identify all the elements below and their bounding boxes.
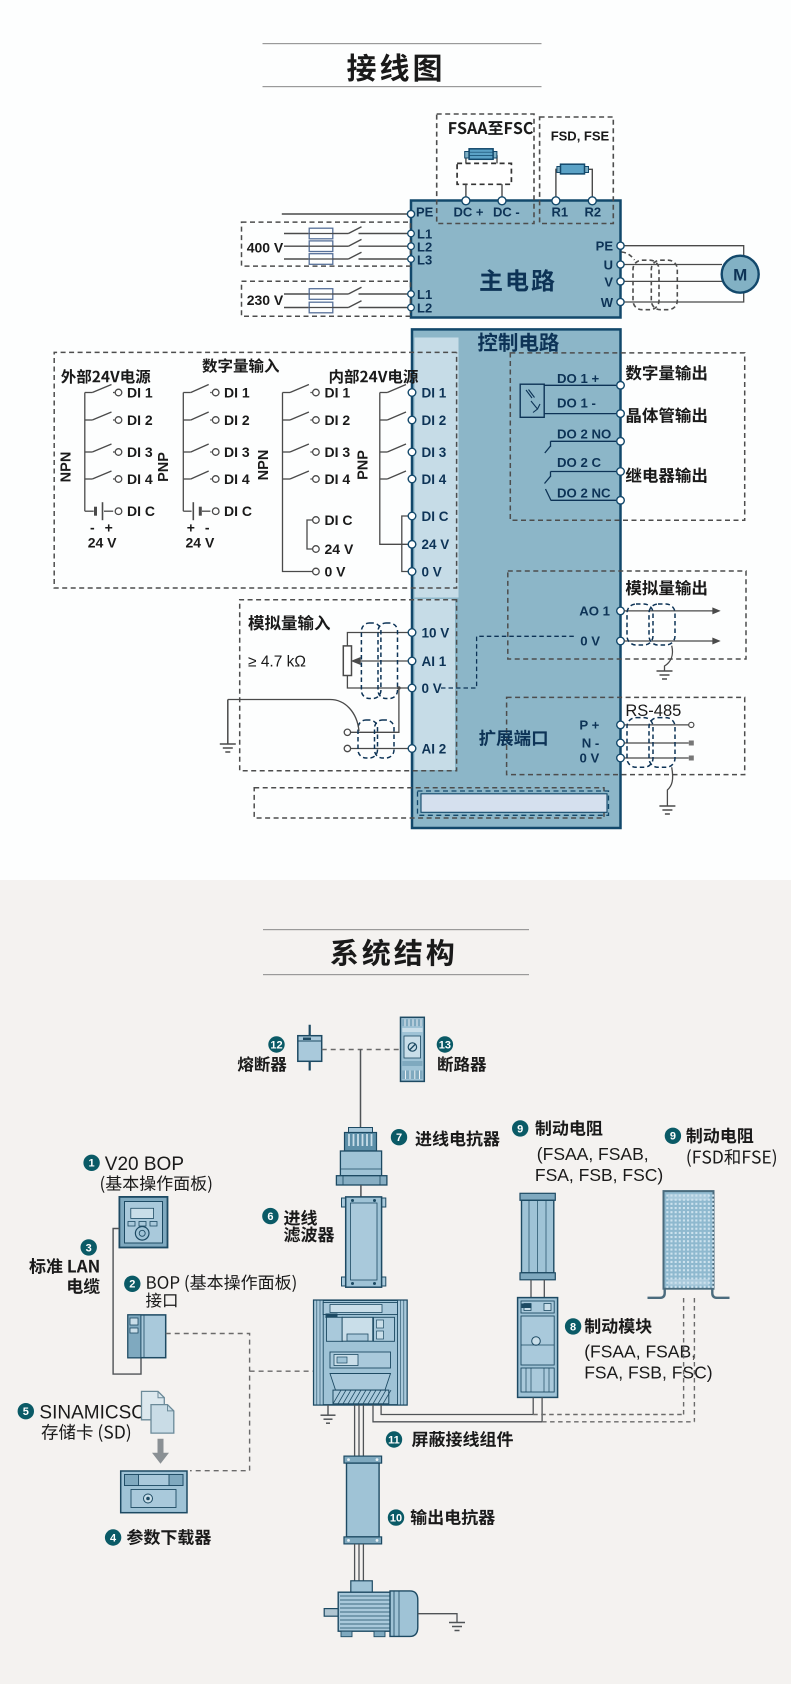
svg-text:0 V: 0 V [422,564,442,579]
svg-text:10 V: 10 V [422,625,450,640]
svg-text:FSD, FSE: FSD, FSE [551,129,610,144]
svg-text:DI 1: DI 1 [422,385,447,400]
svg-text:DC -: DC - [493,205,520,220]
svg-text:DI 4: DI 4 [127,471,153,487]
svg-text:DI C: DI C [224,503,252,519]
svg-text:DI 4: DI 4 [325,471,351,487]
svg-text:NPN: NPN [58,452,74,483]
svg-text:DI 2: DI 2 [325,412,351,428]
svg-text:10: 10 [390,1513,402,1525]
svg-text:13: 13 [439,1039,451,1051]
svg-text:DI 3: DI 3 [325,444,351,460]
svg-text:0 V: 0 V [580,634,600,649]
svg-text:DI 4: DI 4 [422,472,447,487]
svg-text:V20 BOP: V20 BOP [105,1154,184,1175]
svg-text:3: 3 [86,1242,92,1254]
svg-text:8: 8 [570,1321,576,1333]
svg-text:DI 1: DI 1 [325,385,351,401]
svg-text:-: - [205,520,210,536]
svg-text:6: 6 [267,1211,273,1223]
svg-text:DO 1 -: DO 1 - [557,396,596,411]
svg-text:AI 2: AI 2 [422,741,447,756]
svg-text:V: V [604,274,613,289]
svg-text:DI 3: DI 3 [422,445,447,460]
svg-text:M: M [733,266,747,285]
svg-text:≥ 4.7 kΩ: ≥ 4.7 kΩ [248,654,306,671]
svg-text:SINAMICSC: SINAMICSC [39,1403,145,1424]
svg-text:+: + [187,520,195,536]
svg-text:2: 2 [129,1279,135,1291]
svg-text:+: + [105,520,113,536]
svg-text:7: 7 [396,1132,402,1144]
svg-text:NPN: NPN [256,450,272,481]
svg-text:0 V: 0 V [580,750,600,765]
svg-text:L2: L2 [417,301,432,316]
svg-text:230 V: 230 V [247,292,284,308]
svg-text:FSA, FSB, FSC): FSA, FSB, FSC) [584,1363,712,1383]
svg-text:W: W [601,295,614,310]
svg-text:DC +: DC + [454,205,484,220]
svg-text:PE: PE [596,239,614,254]
svg-text:11: 11 [388,1434,400,1446]
svg-text:RS-485: RS-485 [625,702,681,720]
svg-text:DO 1 +: DO 1 + [557,371,599,386]
svg-text:R2: R2 [585,205,602,220]
svg-text:DI 2: DI 2 [224,412,250,428]
svg-text:DI 2: DI 2 [127,412,153,428]
svg-text:DI 3: DI 3 [127,444,153,460]
svg-text:0 V: 0 V [325,564,347,580]
svg-text:DI 3: DI 3 [224,444,250,460]
svg-text:24 V: 24 V [422,537,450,552]
svg-text:(FSAA, FSAB,: (FSAA, FSAB, [584,1342,696,1362]
svg-text:PNP: PNP [356,450,372,480]
svg-text:DI 4: DI 4 [224,471,250,487]
svg-text:DI C: DI C [127,503,155,519]
svg-text:AI 1: AI 1 [422,654,447,669]
svg-text:24 V: 24 V [325,541,354,557]
svg-text:DO 2 C: DO 2 C [557,455,601,470]
svg-text:DI C: DI C [422,509,449,524]
svg-text:PNP: PNP [156,452,172,482]
svg-text:N -: N - [582,735,600,750]
svg-text:1: 1 [89,1158,95,1170]
svg-text:0 V: 0 V [422,681,442,696]
svg-text:9: 9 [517,1123,523,1135]
svg-text:5: 5 [23,1406,29,1418]
svg-text:FSA, FSB, FSC): FSA, FSB, FSC) [535,1165,663,1185]
svg-text:9: 9 [670,1131,676,1143]
svg-text:PE: PE [416,205,434,220]
svg-text:DI C: DI C [325,512,353,528]
svg-text:DO 2 NO: DO 2 NO [557,427,611,442]
svg-text:24 V: 24 V [88,535,117,551]
svg-text:4: 4 [110,1532,117,1544]
svg-text:DI 2: DI 2 [422,413,447,428]
svg-text:R1: R1 [552,205,569,220]
svg-text:P +: P + [579,718,599,733]
svg-text:L3: L3 [417,252,432,267]
svg-text:U: U [604,258,613,273]
svg-text:AO 1: AO 1 [579,604,610,619]
svg-text:-: - [90,520,95,536]
svg-text:(FSAA, FSAB,: (FSAA, FSAB, [537,1144,649,1164]
svg-text:DI 1: DI 1 [127,385,153,401]
svg-text:12: 12 [270,1039,282,1051]
svg-text:400 V: 400 V [247,240,284,256]
svg-text:DO 2 NC: DO 2 NC [557,486,611,501]
svg-text:24 V: 24 V [186,535,215,551]
svg-text:DI 1: DI 1 [224,385,250,401]
